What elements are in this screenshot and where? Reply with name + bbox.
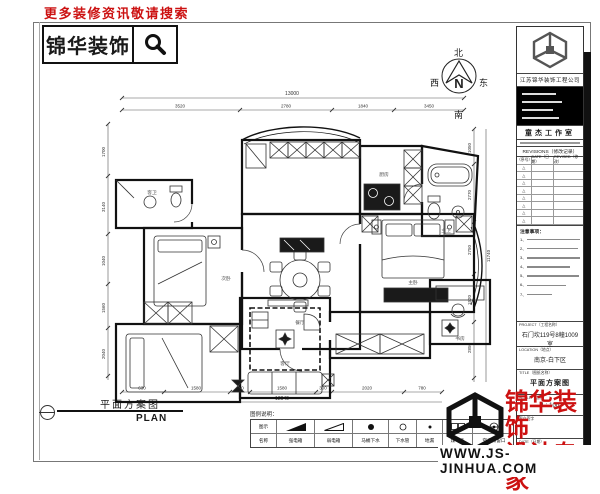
rev-triangle-icon: △ — [517, 217, 532, 225]
project-value: 石门坎119号8幢1009室 — [519, 330, 581, 348]
logo-text: 锦华装饰 — [44, 27, 132, 62]
svg-text:厨房: 厨房 — [379, 171, 389, 178]
svg-text:书房: 书房 — [455, 335, 465, 342]
compass-icon: N — [440, 57, 478, 95]
promo-text: 更多装修资讯敬请搜索 — [44, 3, 189, 22]
jinhua-logo-box: 锦华装饰 — [42, 25, 178, 64]
note-number: 1、 — [520, 237, 526, 243]
notes-title: 注意事项： — [520, 228, 580, 235]
location-field: LOCATION（地点） 南京-白下区 — [517, 347, 583, 370]
star-icon — [445, 323, 455, 333]
svg-text:13000: 13000 — [285, 91, 299, 97]
brand-line1: 锦华装饰 — [505, 390, 600, 442]
rev-triangle-icon: △ — [517, 180, 532, 188]
legend-item-label: 马桶下水 — [353, 434, 389, 447]
weak-power-box-icon — [315, 420, 353, 434]
sheet-edge-black-bar — [584, 52, 591, 448]
svg-text:次卧: 次卧 — [221, 275, 231, 282]
svg-text:2750: 2750 — [467, 244, 472, 255]
drain-pipe-icon — [389, 420, 417, 434]
project-field: PROJECT（工程名称） 石门坎119号8幢1009室 — [517, 322, 583, 347]
svg-text:餐厅: 餐厅 — [295, 319, 305, 326]
floor-plan-drawing: 13000 3520 2780 1840 3450 630 1580 390 1… — [92, 84, 496, 414]
star-icon — [279, 333, 291, 345]
legend-col-symbol: 图示 — [251, 420, 277, 434]
compass-west-label: 西 — [430, 76, 439, 89]
note-number: 2、 — [520, 246, 526, 252]
note-number: 4、 — [520, 264, 526, 270]
sheet-frame-inner-line — [39, 22, 40, 460]
svg-text:主卧: 主卧 — [408, 279, 418, 286]
svg-text:1560: 1560 — [101, 302, 106, 313]
note-number: 3、 — [520, 255, 526, 261]
note-number: 6、 — [520, 282, 526, 288]
rev-triangle-icon: △ — [517, 210, 532, 218]
company-info-box — [517, 87, 583, 126]
note-number: 7、 — [520, 292, 526, 298]
plan-title-en: PLAN — [136, 413, 167, 424]
compass: 北 西 东 南 N — [430, 46, 488, 120]
svg-text:780: 780 — [418, 386, 426, 391]
svg-text:1580: 1580 — [191, 386, 202, 391]
plan-marker-icon — [40, 405, 55, 420]
location-value: 南京-白下区 — [519, 355, 581, 364]
svg-text:客卫: 客卫 — [147, 189, 157, 196]
project-label: PROJECT（工程名称） — [519, 323, 581, 328]
rev-triangle-icon: △ — [517, 195, 532, 203]
svg-text:1050: 1050 — [467, 142, 472, 153]
studio-subline — [517, 140, 583, 147]
rev-col-header: REVISED（修改） — [554, 157, 583, 165]
floor-drain-icon — [417, 420, 443, 434]
compass-east-label: 东 — [479, 76, 488, 89]
rev-triangle-icon: △ — [517, 165, 532, 173]
company-name: 江苏锦华装饰工程公司 — [517, 74, 583, 87]
svg-text:2780: 2780 — [281, 104, 292, 109]
revisions-table: （序号） DATE（日期） REVISED（修改） △ △ △ △ △ △ △ … — [517, 157, 583, 226]
svg-text:11740: 11740 — [486, 249, 491, 262]
svg-text:1040: 1040 — [101, 255, 106, 266]
svg-text:1840: 1840 — [358, 104, 369, 109]
toilet-drain-icon — [353, 420, 389, 434]
svg-text:2020: 2020 — [362, 386, 373, 391]
svg-text:3140: 3140 — [101, 201, 106, 212]
website-text: WWW.JS-JINHUA.COM — [438, 445, 600, 477]
location-label: LOCATION（地点） — [519, 348, 581, 353]
drawing-title-label: TITLE（图纸名称） — [519, 371, 581, 376]
brand-text: 锦华装饰 设计专家 — [505, 390, 600, 494]
legend-item-label: 强电箱 — [277, 434, 315, 447]
svg-text:客厅: 客厅 — [280, 360, 290, 367]
svg-text:1580: 1580 — [277, 386, 288, 391]
room-labels: 客卫 次卧 厨房 主卫 主卧 餐厅 客厅 书房 — [147, 171, 465, 367]
svg-text:2040: 2040 — [101, 348, 106, 359]
note-number: 5、 — [520, 273, 526, 279]
rev-col-header: DATE（日期） — [532, 157, 554, 165]
rev-triangle-icon: △ — [517, 202, 532, 210]
search-icon — [132, 27, 176, 62]
walls — [116, 140, 490, 402]
legend-col-name: 名称 — [251, 434, 277, 447]
door-arcs — [174, 184, 422, 371]
legend-item-label: 下水管 — [389, 434, 417, 447]
company-cube-logo-icon — [517, 27, 583, 74]
legend-item-label: 弱电箱 — [315, 434, 353, 447]
svg-text:N: N — [454, 76, 463, 91]
studio-name: 童杰工作室 — [517, 126, 583, 140]
drawing-title-value: 平面方案图 — [519, 378, 581, 388]
strong-power-box-icon — [277, 420, 315, 434]
rev-triangle-icon: △ — [517, 187, 532, 195]
svg-text:主卫: 主卫 — [441, 227, 451, 234]
rev-triangle-icon: △ — [517, 172, 532, 180]
compass-south-label: 南 — [454, 108, 463, 121]
notes-section: 注意事项： 1、 2、 3、 4、 5、 6、 7、 — [517, 226, 583, 323]
svg-text:2770: 2770 — [467, 189, 472, 200]
svg-text:3520: 3520 — [175, 104, 186, 109]
svg-text:1700: 1700 — [101, 146, 106, 157]
rev-col-header: （序号） — [517, 157, 532, 165]
